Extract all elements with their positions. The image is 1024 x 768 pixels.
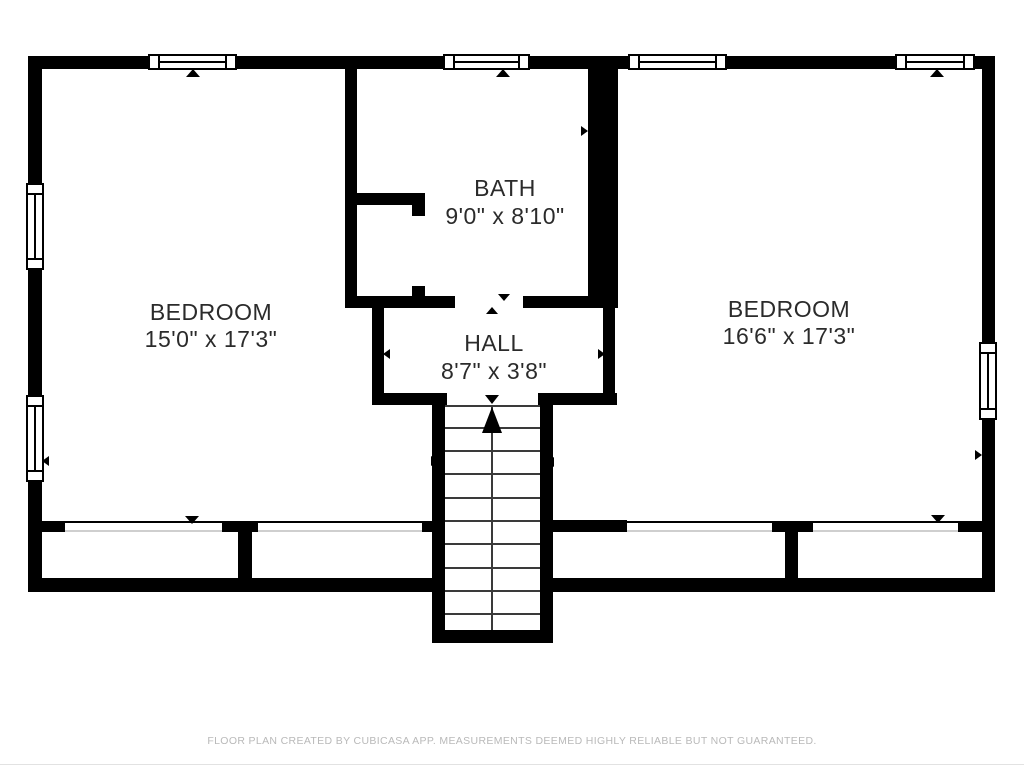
floor-plan: BEDROOM 15'0" x 17'3" BATH 9'0" x 8'10" … xyxy=(0,0,1024,768)
closet-door-marker-icon xyxy=(185,516,199,524)
wall xyxy=(28,56,42,183)
wall xyxy=(982,420,995,592)
door-marker-icon xyxy=(350,126,357,136)
window xyxy=(443,54,530,70)
wall xyxy=(412,286,425,308)
room-label-bedroom-right: BEDROOM 16'6" x 17'3" xyxy=(723,296,856,350)
room-name: BEDROOM xyxy=(723,296,856,323)
wall xyxy=(550,520,627,532)
door-marker-icon xyxy=(383,349,390,359)
room-label-bedroom-left: BEDROOM 15'0" x 17'3" xyxy=(145,299,278,353)
window-marker-icon xyxy=(496,69,510,77)
wall xyxy=(222,521,258,532)
wall xyxy=(588,69,618,308)
bottom-divider xyxy=(0,764,1024,765)
room-dimensions: 9'0" x 8'10" xyxy=(445,202,564,230)
bath-door-marker-icon xyxy=(498,294,510,301)
window xyxy=(26,395,44,482)
room-label-hall: HALL 8'7" x 3'8" xyxy=(441,329,547,385)
wall xyxy=(28,578,432,592)
wall xyxy=(237,56,443,69)
window xyxy=(26,183,44,270)
stair-up-arrow-icon xyxy=(482,407,502,433)
wall xyxy=(982,56,995,342)
room-dimensions: 16'6" x 17'3" xyxy=(723,323,856,350)
wall xyxy=(28,270,42,395)
hall-door-marker-icon xyxy=(486,307,498,314)
closet-door-track xyxy=(258,530,422,532)
window xyxy=(628,54,727,70)
closet-door-track xyxy=(65,530,222,532)
closet-door-track xyxy=(813,530,958,532)
wall xyxy=(345,69,357,308)
wall xyxy=(772,521,813,532)
window xyxy=(148,54,237,70)
window-marker-icon xyxy=(930,69,944,77)
stair-door-marker-icon xyxy=(546,457,554,467)
window xyxy=(979,342,997,420)
footer-credit: FLOOR PLAN CREATED BY CUBICASA APP. MEAS… xyxy=(207,735,816,747)
window-marker-icon xyxy=(42,456,49,466)
stair-direction-line xyxy=(491,405,493,630)
closet-door-track xyxy=(258,521,422,523)
door-marker-icon xyxy=(598,349,605,359)
wall xyxy=(727,56,895,69)
wall xyxy=(530,56,628,69)
room-label-bath: BATH 9'0" x 8'10" xyxy=(445,174,564,230)
room-name: HALL xyxy=(441,329,547,357)
room-name: BATH xyxy=(445,174,564,202)
door-marker-icon xyxy=(581,126,588,136)
closet-door-track xyxy=(627,530,772,532)
wall xyxy=(553,578,995,592)
wall xyxy=(422,521,447,532)
closet-door-marker-icon xyxy=(931,515,945,523)
room-dimensions: 8'7" x 3'8" xyxy=(441,357,547,385)
staircase xyxy=(445,405,540,630)
stair-door-marker-icon xyxy=(431,456,439,466)
room-dimensions: 15'0" x 17'3" xyxy=(145,326,278,353)
stair-entry-marker-icon xyxy=(485,395,499,404)
wall xyxy=(28,56,148,69)
closet-door-track xyxy=(627,521,772,523)
window xyxy=(895,54,975,70)
window-marker-icon xyxy=(975,450,982,460)
window-marker-icon xyxy=(186,69,200,77)
room-name: BEDROOM xyxy=(145,299,278,326)
closet-divider-wall xyxy=(238,532,252,578)
wall xyxy=(345,296,455,308)
wall xyxy=(28,482,42,592)
wall xyxy=(958,521,982,532)
wall xyxy=(412,193,425,216)
stairwell-wall xyxy=(432,630,553,643)
closet-divider-wall xyxy=(785,532,798,578)
wall xyxy=(42,521,65,532)
